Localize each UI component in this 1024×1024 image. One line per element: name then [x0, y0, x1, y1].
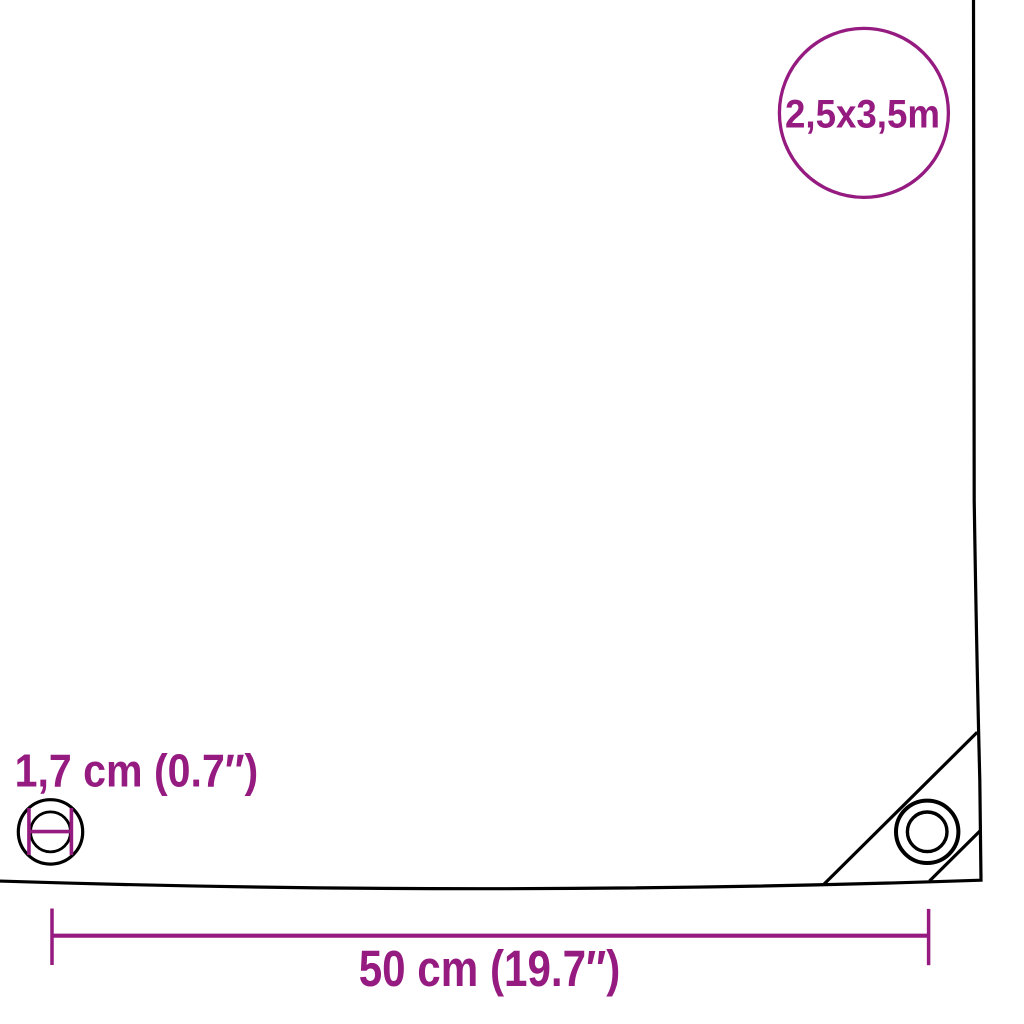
svg-text:1,7 cm (0.7″): 1,7 cm (0.7″) — [15, 745, 259, 797]
svg-text:50 cm (19.7″): 50 cm (19.7″) — [359, 940, 621, 997]
svg-text:2,5x3,5m: 2,5x3,5m — [785, 93, 940, 137]
